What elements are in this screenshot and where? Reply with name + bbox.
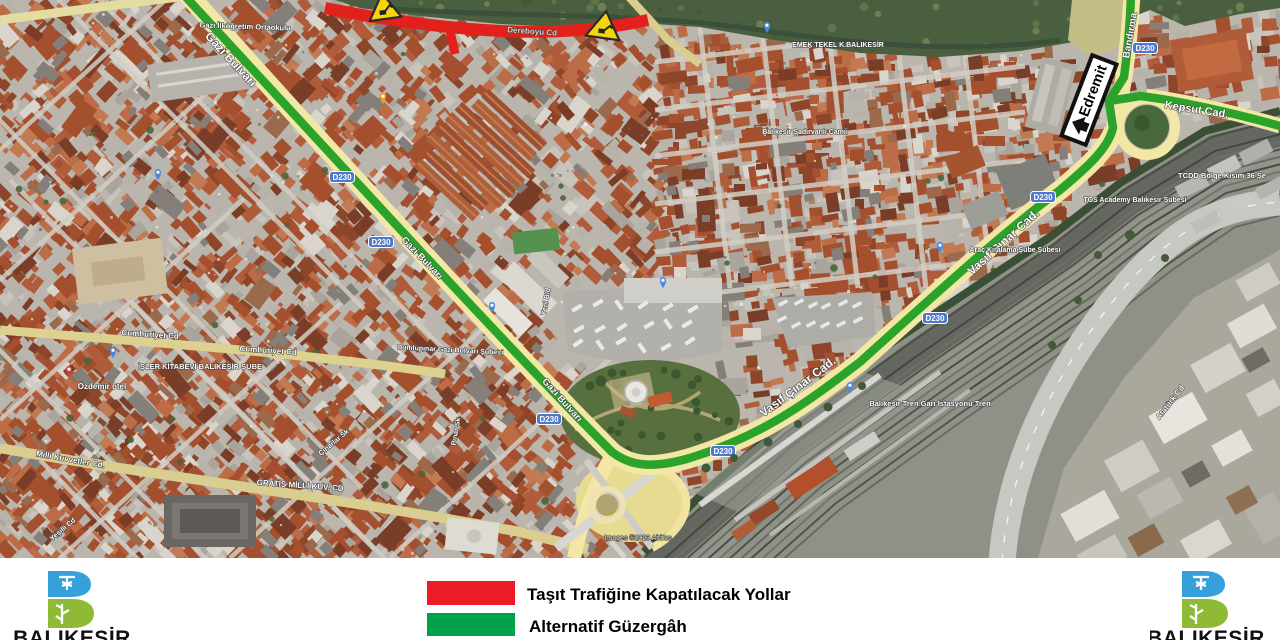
svg-text:D230: D230 bbox=[539, 415, 559, 424]
svg-text:BALIKESİR: BALIKESİR bbox=[1150, 627, 1265, 640]
svg-text:Images ©2023 Airbus: Images ©2023 Airbus bbox=[604, 534, 672, 542]
svg-text:D230: D230 bbox=[1135, 44, 1155, 53]
svg-text:D230: D230 bbox=[925, 314, 945, 323]
svg-text:D230: D230 bbox=[713, 447, 733, 456]
svg-text:Balıkesir Şadırvanlı Camii: Balıkesir Şadırvanlı Camii bbox=[762, 129, 848, 136]
svg-text:EMEK TEKEL K.BALIKESİR: EMEK TEKEL K.BALIKESİR bbox=[792, 41, 884, 49]
svg-text:Özdemir otel: Özdemir otel bbox=[78, 382, 126, 391]
svg-text:D230: D230 bbox=[371, 238, 391, 247]
svg-text:TCDD Bölge Kısım 36 Şe: TCDD Bölge Kısım 36 Şe bbox=[1178, 171, 1266, 180]
svg-text:İŞLER KİTABEVİ BALIKESİR ŞUBE: İŞLER KİTABEVİ BALIKESİR ŞUBE bbox=[138, 362, 262, 371]
svg-text:BALIKESİR: BALIKESİR bbox=[13, 627, 131, 640]
svg-text:TOS Academy Balıkesir Şubesi: TOS Academy Balıkesir Şubesi bbox=[1083, 197, 1186, 204]
svg-text:Araç Kiralama Şube Şubesi: Araç Kiralama Şube Şubesi bbox=[969, 247, 1060, 254]
svg-text:D230: D230 bbox=[1033, 193, 1053, 202]
svg-text:Balıkesir Tren Garı İstasyonu: Balıkesir Tren Garı İstasyonu Tren bbox=[869, 399, 991, 408]
svg-text:D230: D230 bbox=[332, 173, 352, 182]
